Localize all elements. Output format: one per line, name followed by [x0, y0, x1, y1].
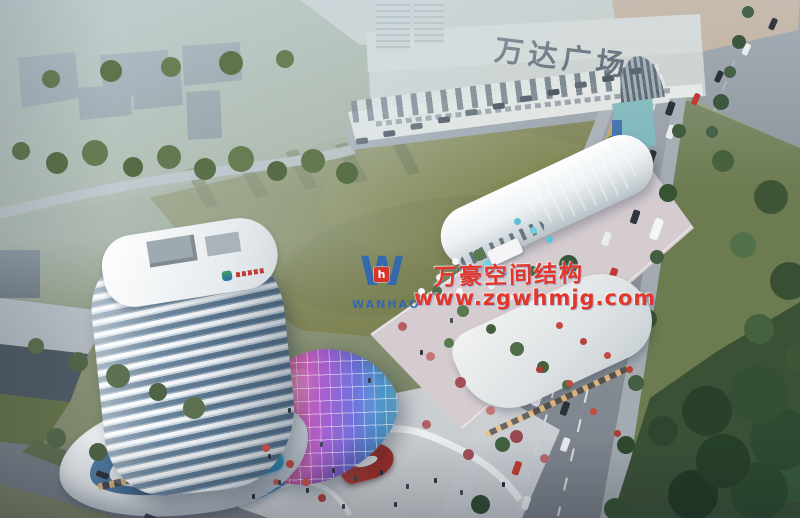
watermark: W h WANHAO 万豪空间结构 www.zgwhmjg.com [352, 252, 622, 324]
wanhao-logo-text: WANHAO [352, 298, 420, 311]
trees-southwest [28, 338, 44, 354]
sw-green-strip [0, 394, 70, 448]
wanhao-logo-badge-icon: h [374, 267, 389, 282]
aerial-architectural-rendering: 万达广场 W h [0, 0, 800, 518]
pedestrians [332, 468, 335, 473]
tower-logo-lettering [236, 268, 264, 277]
warehouse-front [0, 344, 88, 402]
residential-tower [376, 0, 410, 52]
trees-northwest [12, 142, 30, 160]
trees-median [742, 6, 754, 18]
residential-tower [414, 0, 444, 44]
watermark-website: www.zgwhmjg.com [414, 286, 656, 310]
park-trees [648, 416, 678, 446]
red-umbrellas [262, 444, 270, 452]
trees-right-lawn [712, 150, 734, 172]
street-trees-right [672, 124, 686, 138]
tower-logo-emblem-icon [221, 270, 232, 281]
shed [0, 250, 40, 298]
cyan-umbrellas [514, 218, 521, 225]
